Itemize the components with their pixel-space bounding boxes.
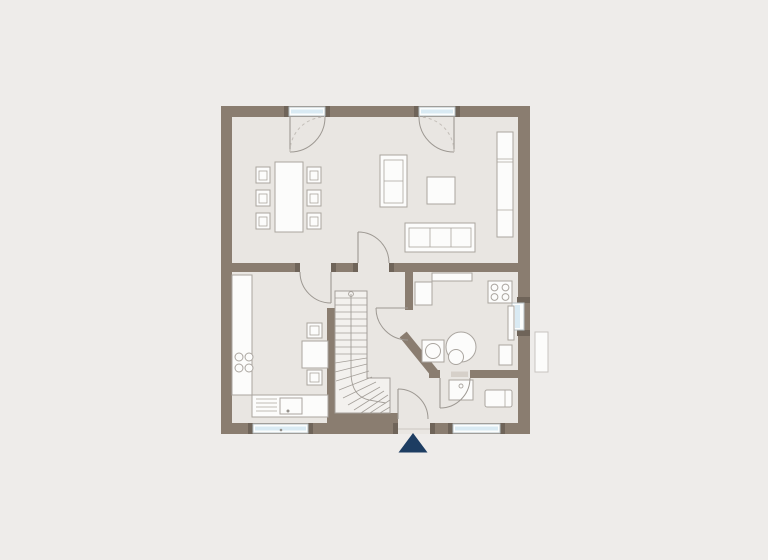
dining-chair: [256, 213, 270, 229]
interior-wall-hall-bottom: [327, 413, 398, 423]
dining-chair: [256, 167, 270, 183]
door-jamb: [393, 423, 398, 434]
cooktop-burner: [235, 353, 243, 361]
sofa-three-seat: [405, 223, 475, 252]
stove-burner: [502, 294, 509, 301]
cooktop-burner: [245, 364, 253, 372]
interior-wall-hall-utility: [405, 272, 413, 310]
interior-wall-dining-kitchen: [232, 263, 295, 272]
utility-window-glass: [515, 305, 520, 328]
window-handle-dot: [280, 429, 283, 432]
stove-burner: [502, 284, 509, 291]
utility-counter: [432, 273, 472, 281]
kitchen-sink: [280, 398, 302, 414]
door-jamb: [284, 106, 289, 117]
stove-burner: [491, 284, 498, 291]
window-jamb: [517, 297, 530, 303]
door-jamb: [414, 106, 419, 117]
kitchen-counter-left: [232, 275, 252, 395]
dining-chair: [307, 213, 321, 229]
door-jamb: [353, 263, 358, 272]
kitchen-chair: [307, 323, 322, 338]
toilet: [485, 390, 512, 407]
door-jamb: [325, 106, 330, 117]
dining-chair: [256, 190, 270, 206]
dining-table: [275, 162, 303, 232]
interior-wall-stair-head: [336, 263, 353, 272]
dining-chair: [307, 167, 321, 183]
door-jamb: [331, 263, 336, 272]
window-jamb: [308, 423, 313, 434]
utility-side-cabinet: [499, 345, 512, 365]
dining-chair: [307, 190, 321, 206]
interior-wall-living-utility: [394, 263, 518, 272]
window-jamb: [448, 423, 453, 434]
door-jamb: [389, 263, 394, 272]
outside-panel: [535, 332, 548, 372]
wall-unit: [497, 132, 513, 237]
kitchen-chair: [307, 370, 322, 385]
utility-side-counter: [508, 306, 514, 340]
interior-wall-utility-wc-left: [429, 370, 440, 378]
tiny-wall-label: [451, 372, 468, 378]
terrace-door-glass: [421, 110, 453, 114]
coffee-table: [427, 177, 455, 204]
interior-wall-utility-wc-right: [470, 370, 518, 378]
cooktop-burner: [235, 364, 243, 372]
floor-plan-svg: [0, 0, 768, 560]
terrace-door-glass: [291, 110, 323, 114]
entrance-marker: [399, 433, 428, 453]
utility-cabinet: [415, 282, 432, 305]
door-jamb: [455, 106, 460, 117]
door-jamb: [430, 423, 435, 434]
window-jamb: [517, 330, 530, 336]
window-jamb: [248, 423, 253, 434]
cooktop-burner: [245, 353, 253, 361]
boiler-pump: [449, 350, 464, 365]
door-jamb: [295, 263, 300, 272]
window-jamb: [500, 423, 505, 434]
sink-drain-dot: [287, 410, 290, 413]
kitchen-table: [302, 341, 328, 368]
wc-window-glass: [455, 427, 498, 431]
floor-plan-page: [0, 0, 768, 560]
stove: [488, 281, 512, 303]
stove-burner: [491, 294, 498, 301]
